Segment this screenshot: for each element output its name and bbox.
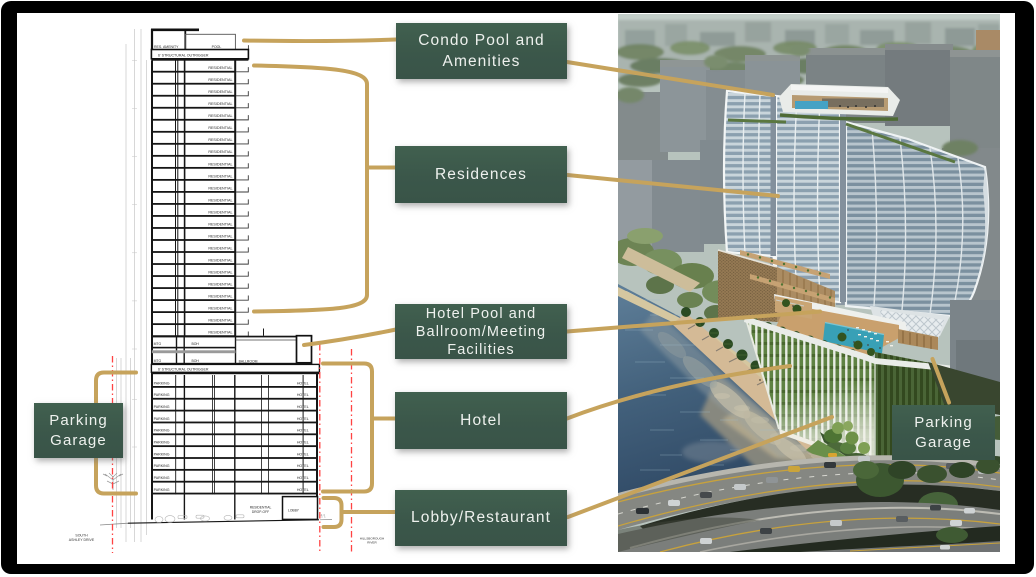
svg-text:DROP-OFF: DROP-OFF	[252, 510, 269, 514]
svg-text:POOL: POOL	[212, 45, 222, 49]
svg-text:RES. AMENITY: RES. AMENITY	[154, 45, 179, 49]
svg-text:BOH: BOH	[192, 359, 200, 363]
svg-text:MTG: MTG	[154, 359, 162, 363]
svg-text:6' STRUCTURAL OUTRIGGER: 6' STRUCTURAL OUTRIGGER	[158, 368, 209, 372]
svg-text:BOH: BOH	[192, 342, 200, 346]
svg-text:ASHLEY DRIVE: ASHLEY DRIVE	[69, 538, 95, 542]
svg-text:6' STRUCTURAL OUTRIGGER: 6' STRUCTURAL OUTRIGGER	[158, 54, 209, 58]
svg-text:LOBBY: LOBBY	[288, 509, 300, 513]
svg-text:RIVER: RIVER	[367, 541, 377, 545]
svg-text:SOUTH: SOUTH	[75, 534, 88, 538]
svg-text:MTG: MTG	[154, 342, 162, 346]
svg-text:RESIDENTIAL: RESIDENTIAL	[250, 506, 272, 510]
